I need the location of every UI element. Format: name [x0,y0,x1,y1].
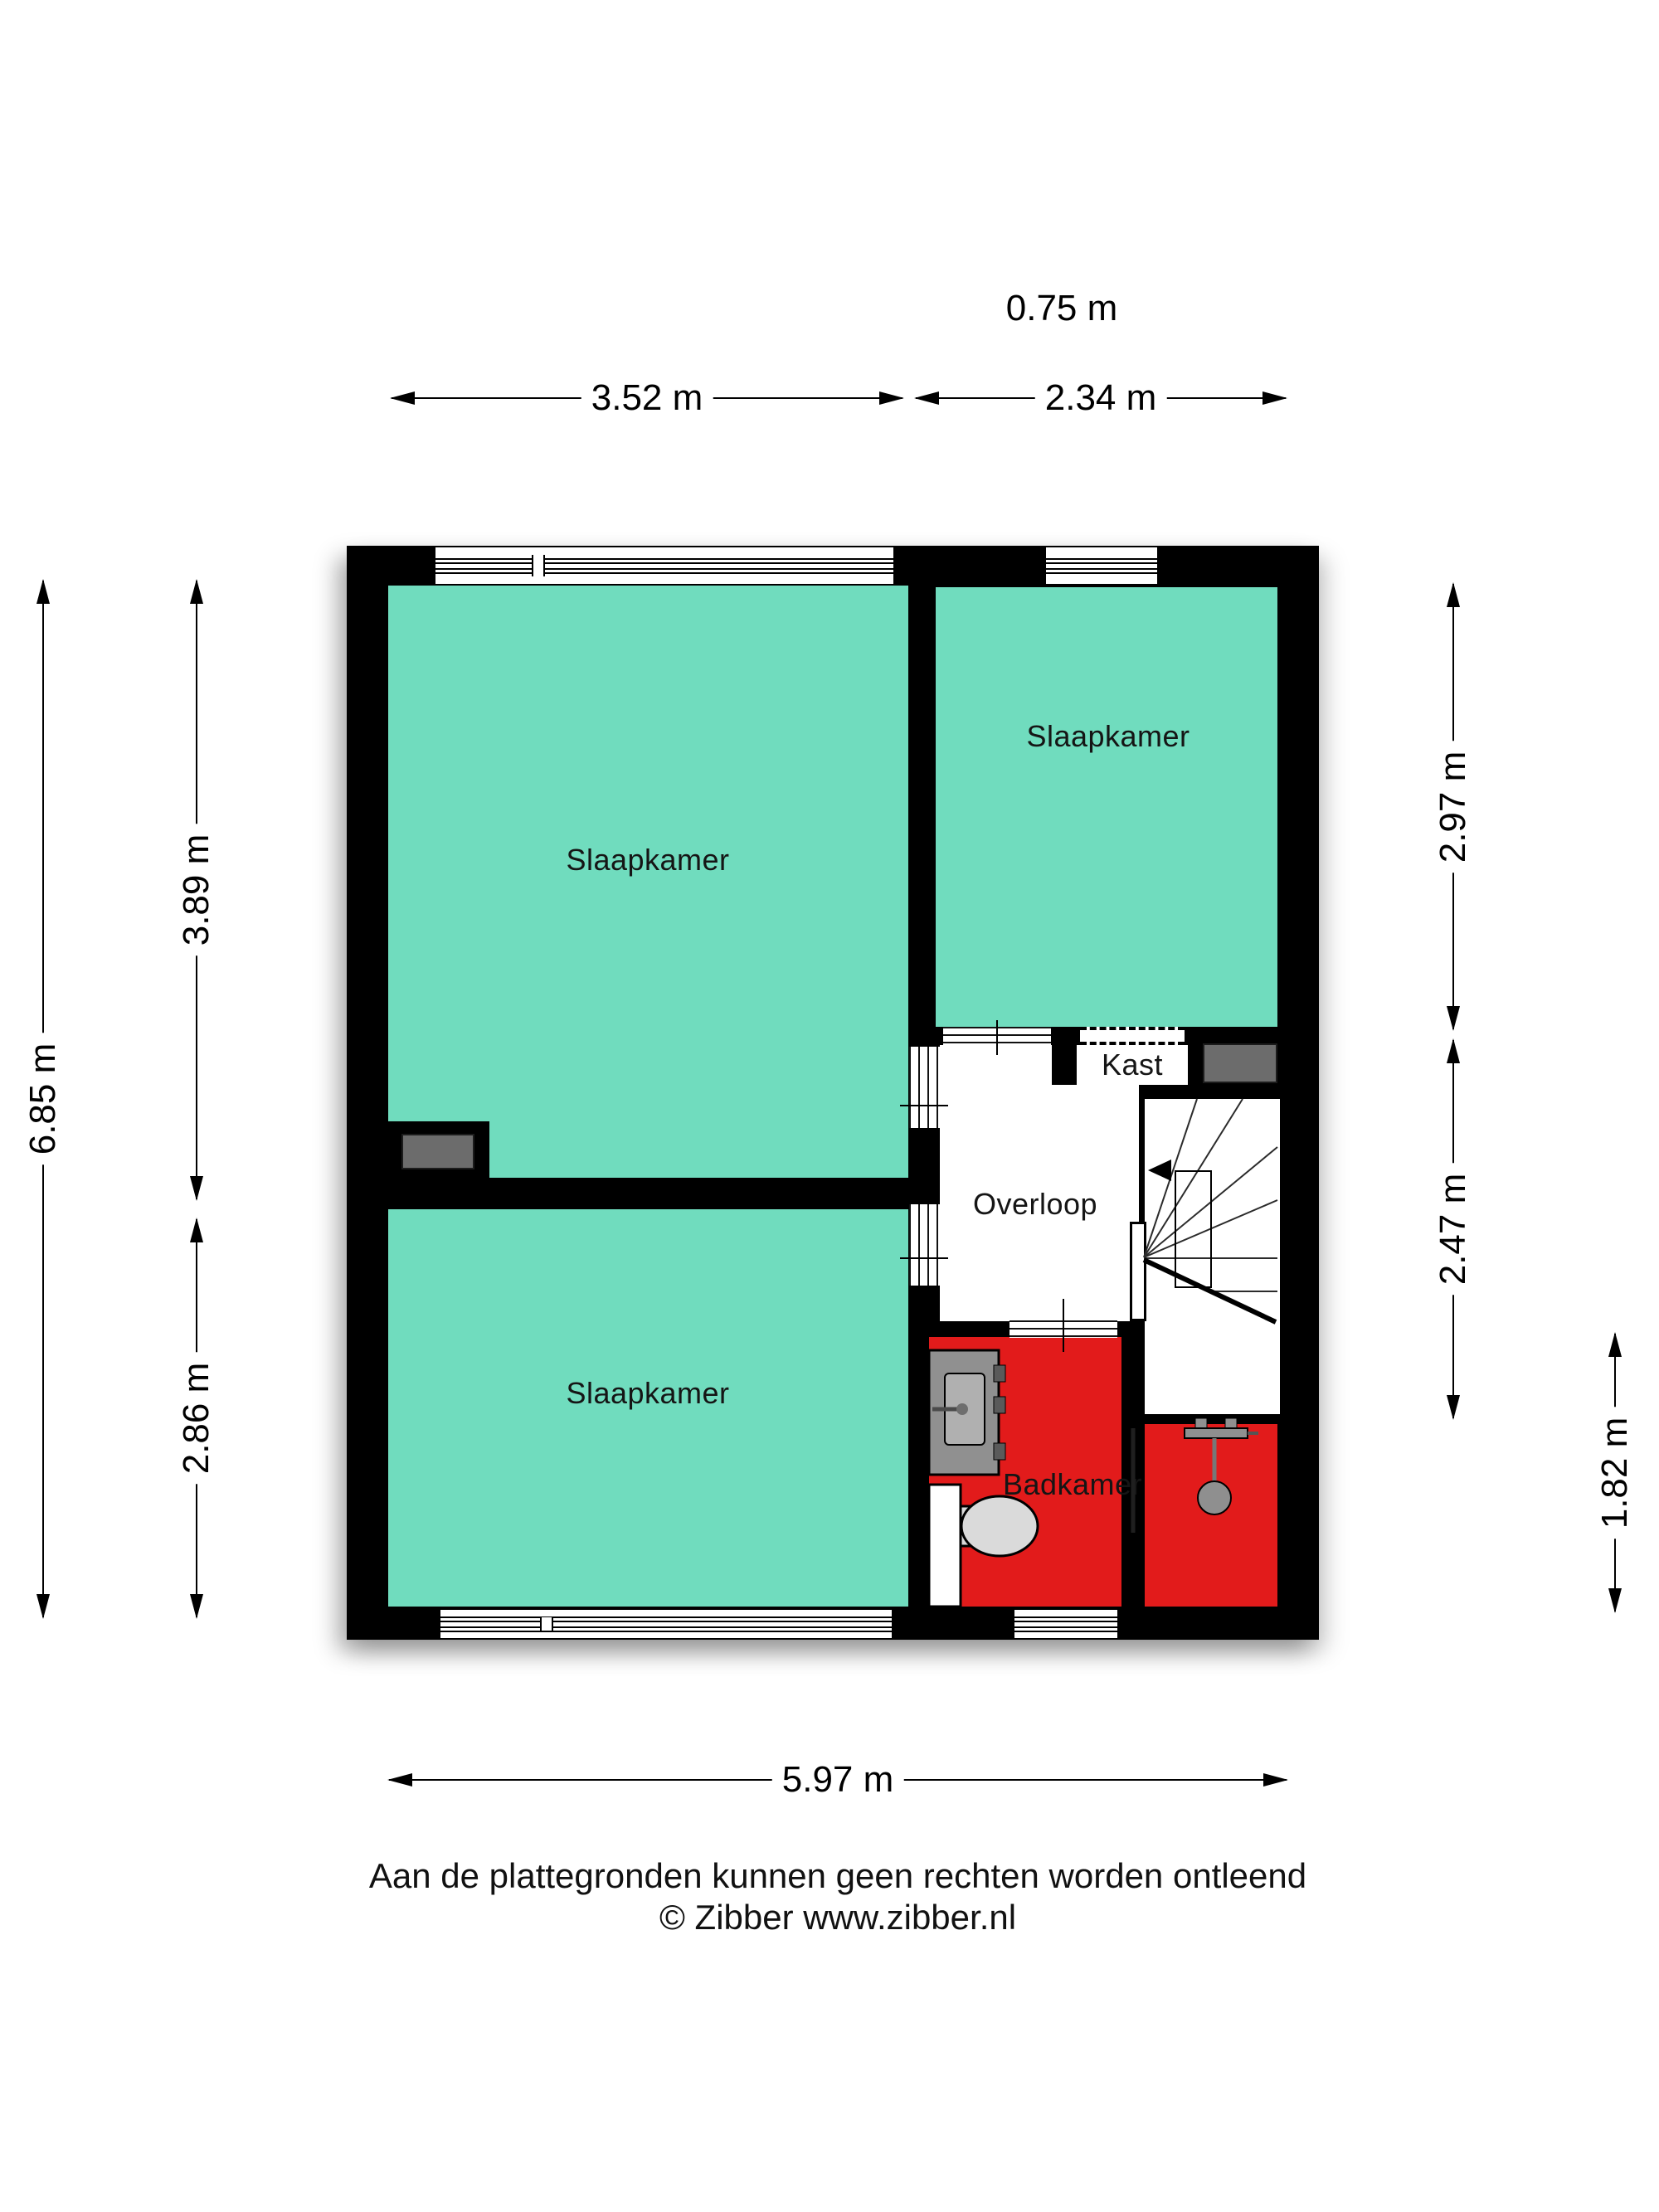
dimension-left-total-height: 6.85 m [28,579,58,1619]
window-bottom-left [438,1610,894,1638]
window-mullion [540,1617,553,1631]
footer-disclaimer: Aan de plattegronden kunnen geen rechten… [369,1856,1306,1896]
dimension-label: 3.89 m [176,824,217,956]
dimension-label: 3.52 m [581,377,713,419]
dimension-label: 5.97 m [772,1759,904,1801]
dimension-top-offset: 0.75 m [1006,288,1118,329]
door-leaf-stairs [1130,1222,1146,1321]
room-bathroom-shower-area [1145,1424,1277,1607]
floorplan-page: Slaapkamer Slaapkamer Slaapkamer Overloo… [0,0,1659,2212]
room-label-bedroom-bottom-left: Slaapkamer [566,1376,729,1411]
dimension-right-upper-height: 2.97 m [1438,582,1468,1031]
dimension-right-lower-height: 1.82 m [1600,1332,1630,1613]
footer-credit: © Zibber www.zibber.nl [659,1898,1016,1937]
window-mullion [532,555,545,576]
dimension-label: 2.34 m [1035,377,1167,419]
room-label-bedroom-top-left: Slaapkamer [566,843,729,878]
dimension-label: 6.85 m [22,1033,64,1165]
window-top-left [433,547,896,584]
door-opening-bedroom-top-left [909,1047,942,1128]
dimension-label: 2.86 m [176,1353,217,1485]
door-opening-bedroom-top-right [943,1027,1051,1045]
dimension-label: 1.82 m [1594,1407,1636,1539]
dimension-label: 2.47 m [1433,1164,1474,1296]
dimension-top-right-width: 2.34 m [914,383,1287,413]
room-label-bathroom: Badkamer [1003,1467,1142,1502]
door-opening-bedroom-bottom-left [909,1204,942,1286]
dimension-bottom-width: 5.97 m [387,1765,1288,1795]
window-bottom-bathroom [1012,1610,1120,1638]
room-label-closet: Kast [1102,1048,1163,1082]
room-landing [940,1045,1139,1321]
door-opening-bathroom [1010,1320,1117,1338]
wall-stairs-edge [1139,1099,1145,1222]
dimension-left-upper-height: 3.89 m [182,579,212,1201]
wall-closet-left [1052,1027,1077,1085]
room-bedroom-top-left [388,586,908,1178]
dimension-top-left-width: 3.52 m [390,383,904,413]
duct-block-right [1203,1043,1277,1083]
room-label-landing: Overloop [973,1187,1097,1222]
room-label-bedroom-top-right: Slaapkamer [1026,719,1190,754]
dimension-right-middle-height: 2.47 m [1438,1038,1468,1420]
duct-block-left [401,1134,474,1169]
floor-plan: Slaapkamer Slaapkamer Slaapkamer Overloo… [347,546,1319,1640]
room-bedroom-top-right [936,587,1277,1027]
room-stairwell [1145,1099,1280,1414]
door-closet-folding [1080,1027,1185,1045]
dimension-left-lower-height: 2.86 m [182,1218,212,1619]
window-top-right [1044,547,1160,584]
dimension-label: 2.97 m [1433,741,1474,873]
